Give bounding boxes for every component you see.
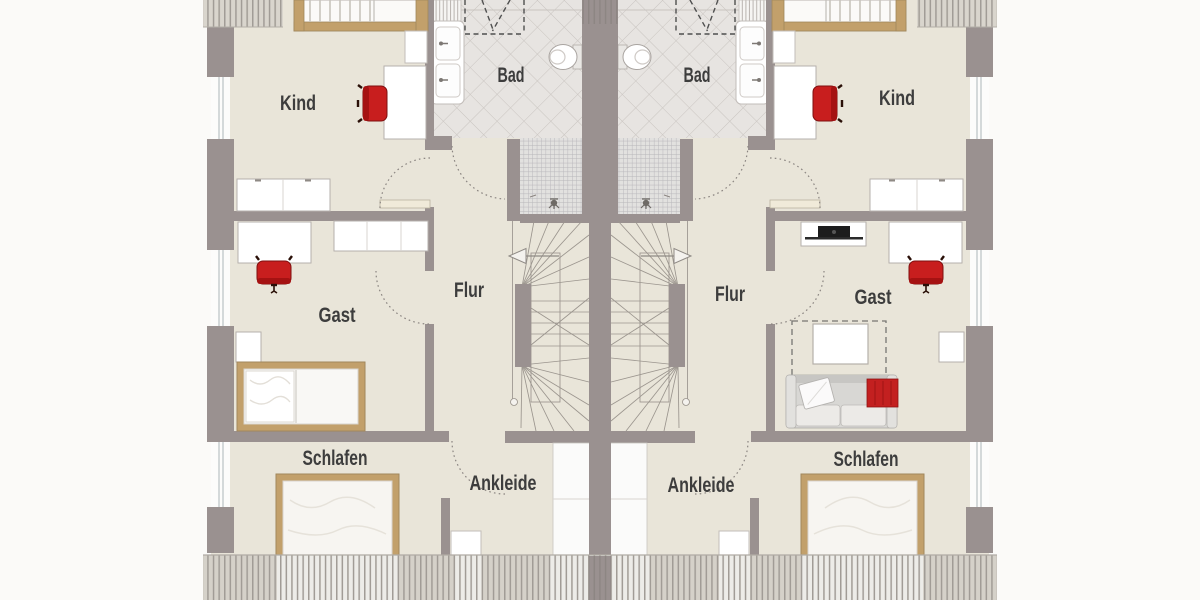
svg-text:Bad: Bad [498,64,525,87]
svg-text:Schlafen: Schlafen [834,448,899,471]
svg-text:Kind: Kind [280,92,316,115]
svg-text:Ankleide: Ankleide [668,474,735,497]
svg-text:Flur: Flur [454,279,484,302]
svg-text:Flur: Flur [715,283,745,306]
svg-text:Schlafen: Schlafen [303,447,368,470]
svg-text:Gast: Gast [319,304,356,327]
svg-text:Ankleide: Ankleide [470,472,537,495]
svg-text:Gast: Gast [855,286,892,309]
svg-text:Bad: Bad [684,64,711,87]
svg-text:Kind: Kind [879,87,915,110]
